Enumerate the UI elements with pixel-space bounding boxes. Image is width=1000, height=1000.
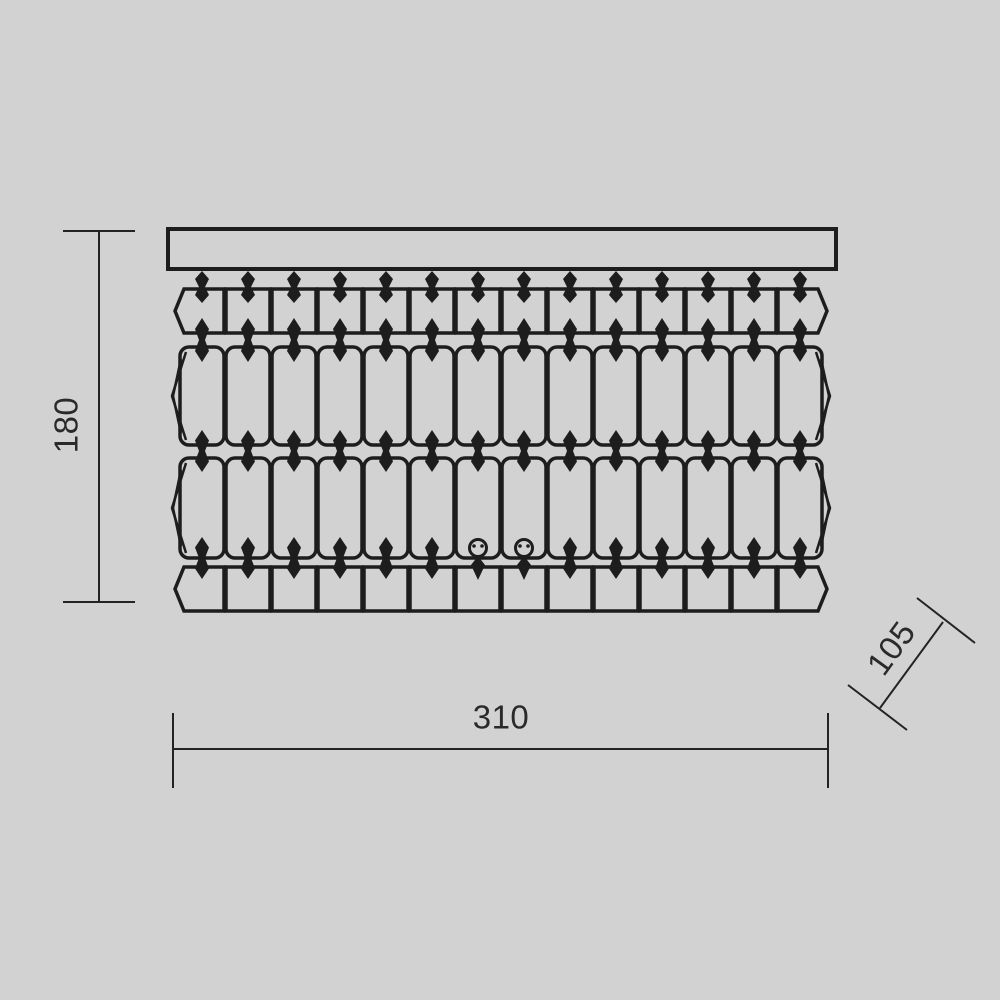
ring-connector [470,540,487,557]
ring-dot [526,544,530,548]
width-dimension-label: 310 [473,699,530,736]
ring-dot [518,544,522,548]
height-dimension-label: 180 [48,397,85,454]
ring-dot [480,544,484,548]
ring-dot [472,544,476,548]
technical-drawing-canvas: 180 310 105 [0,0,1000,1000]
ring-connector [516,540,533,557]
